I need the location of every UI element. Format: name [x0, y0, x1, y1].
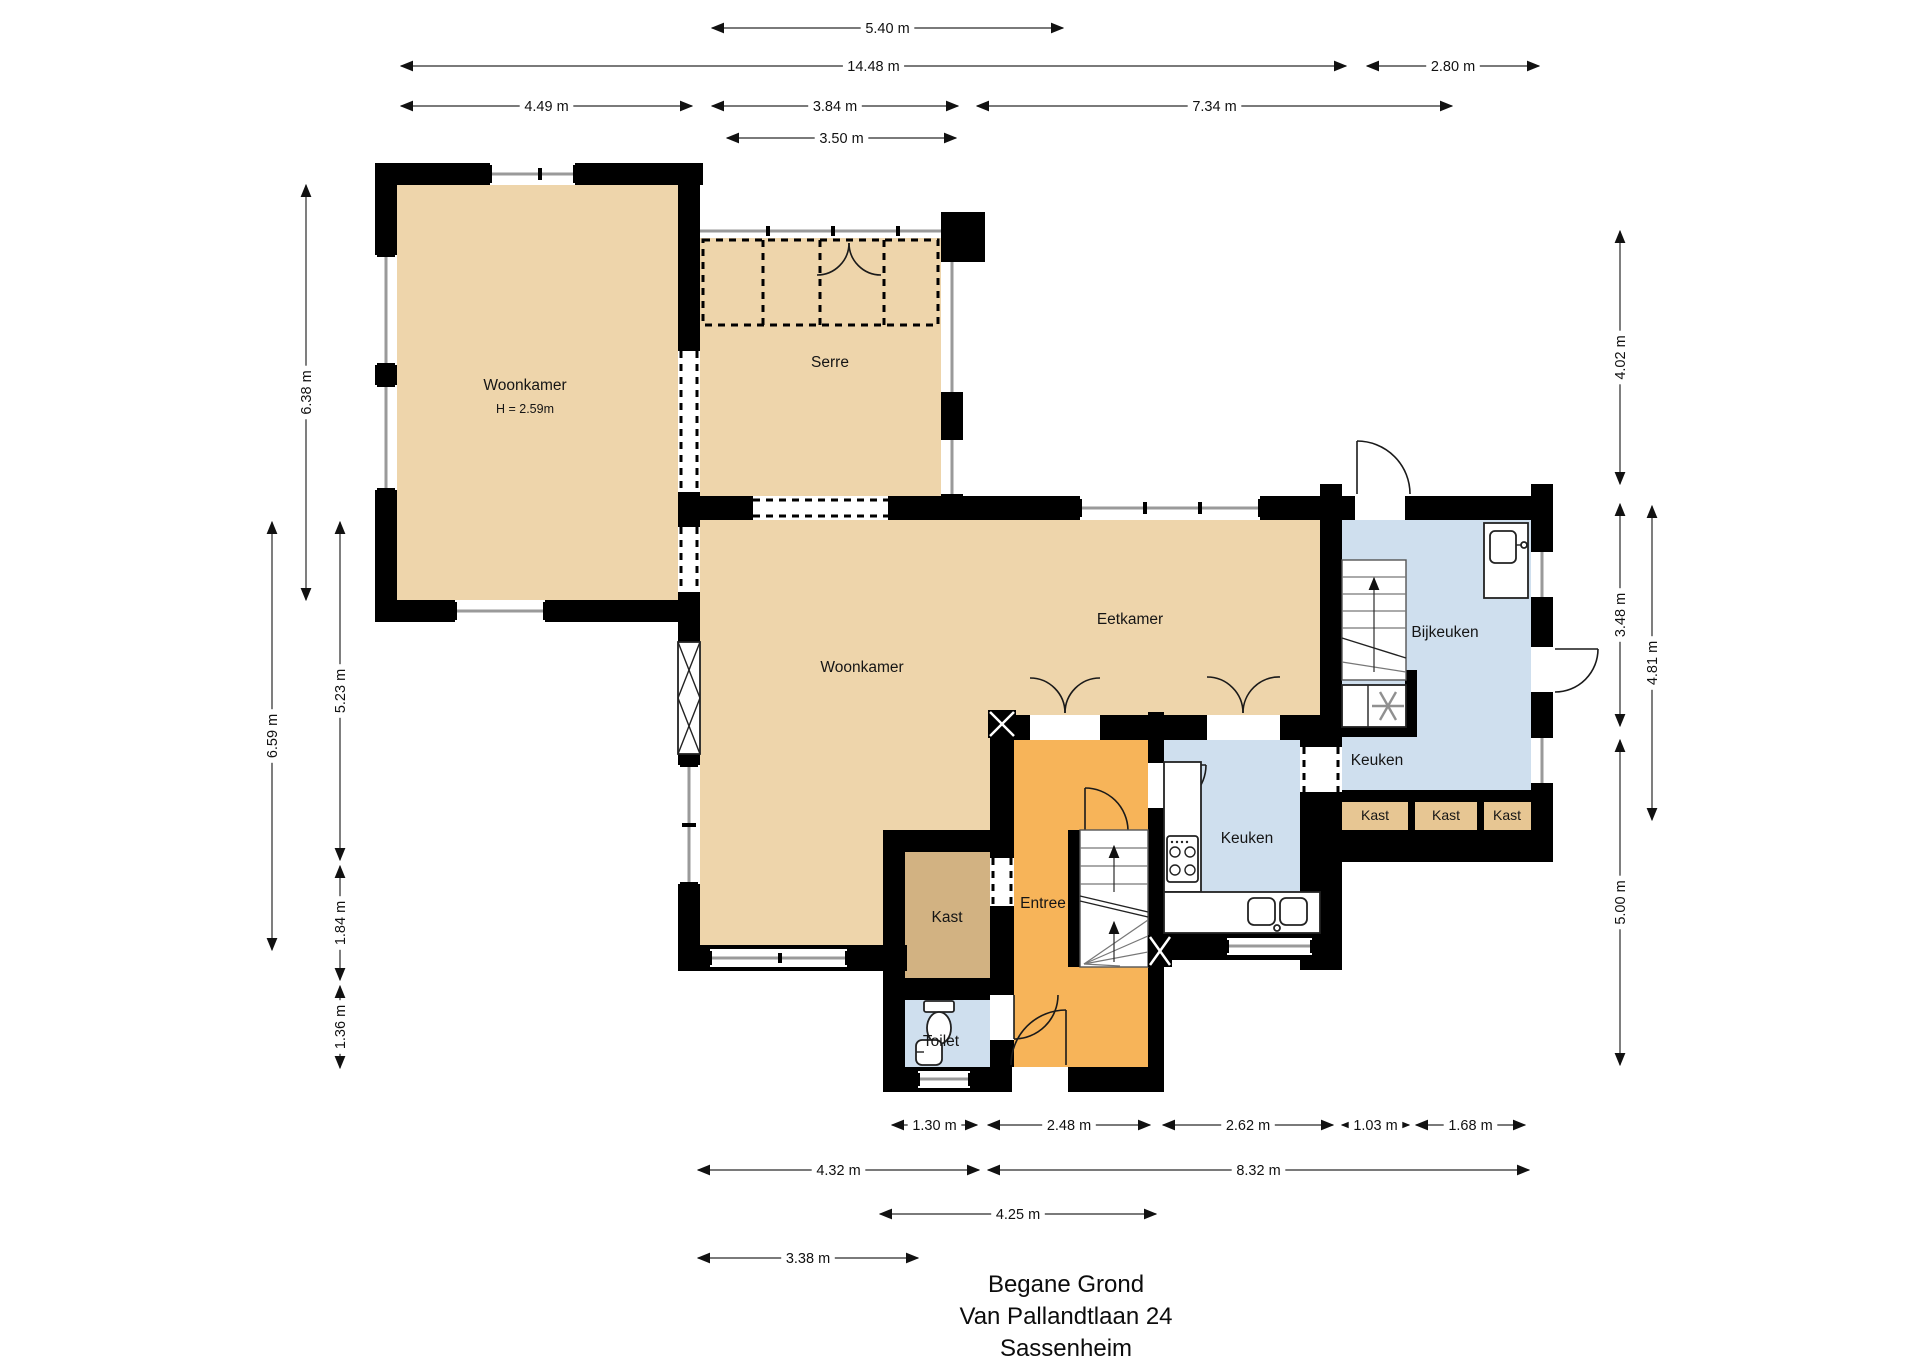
room-label-serre: Serre: [811, 354, 849, 371]
dimension: 2.80 m: [1367, 57, 1539, 75]
window: [490, 163, 575, 185]
dimension-label: 3.84 m: [813, 99, 857, 115]
stove: [1167, 836, 1198, 882]
window: [1531, 552, 1553, 597]
window: [1080, 496, 1260, 520]
window: [710, 949, 847, 967]
dimension-label: 1.68 m: [1448, 1118, 1492, 1134]
floor-plan-canvas: 5.40 m14.48 m2.80 m4.49 m3.84 m7.34 m3.5…: [0, 0, 1920, 1358]
kast-cell-label: Kast: [1432, 807, 1460, 823]
dimension: 1.36 m: [331, 986, 349, 1068]
dimension: 4.25 m: [880, 1205, 1156, 1223]
title-line-2: Van Pallandtlaan 24: [959, 1303, 1172, 1330]
dimension-label: 5.23 m: [333, 669, 349, 713]
window: [1227, 938, 1312, 955]
dimension: 1.84 m: [331, 866, 349, 980]
room-label-woonkamer-1: Woonkamer: [483, 377, 566, 394]
dimension-label: 4.81 m: [1645, 641, 1661, 685]
dimension: 4.81 m: [1643, 506, 1661, 820]
dimension: 1.68 m: [1416, 1116, 1525, 1134]
title-line-3: Sassenheim: [1000, 1335, 1132, 1358]
dimension: 3.48 m: [1611, 504, 1629, 726]
dimension: 8.32 m: [988, 1161, 1529, 1179]
dimension: 5.00 m: [1611, 740, 1629, 1065]
dimension-label: 3.48 m: [1613, 593, 1629, 637]
room-label-kast-entree: Kast: [931, 909, 963, 926]
title-line-1: Begane Grond: [988, 1271, 1144, 1298]
column: [988, 710, 1016, 738]
passage-dashed: [1300, 747, 1342, 792]
room-label-toilet: Toilet: [923, 1033, 960, 1050]
dimension: 4.32 m: [698, 1161, 979, 1179]
dimension: 4.02 m: [1611, 231, 1629, 484]
dimension: 2.62 m: [1163, 1116, 1333, 1134]
dimension-label: 2.62 m: [1226, 1118, 1270, 1134]
room-label-eetkamer: Eetkamer: [1097, 611, 1163, 628]
dimension: 3.38 m: [698, 1249, 918, 1267]
dimension-label: 1.03 m: [1353, 1118, 1397, 1134]
room-label-keuken: Keuken: [1221, 830, 1274, 847]
window: [375, 255, 397, 365]
dimension: 3.50 m: [727, 129, 956, 147]
dimension: 2.48 m: [988, 1116, 1150, 1134]
dimension: 4.49 m: [401, 97, 692, 115]
dimension: 6.38 m: [297, 185, 315, 600]
stairs-entree: [1080, 830, 1148, 967]
dimension-label: 7.34 m: [1192, 99, 1236, 115]
dimension-label: 3.38 m: [786, 1251, 830, 1267]
dimension: 1.30 m: [892, 1116, 977, 1134]
passage-dashed: [678, 527, 700, 592]
dimension: 5.23 m: [331, 522, 349, 860]
window: [375, 385, 397, 490]
room-label-entree: Entree: [1020, 895, 1066, 912]
dimension: 3.84 m: [712, 97, 958, 115]
passage-dashed: [990, 858, 1014, 906]
stairs-bijkeuken: [1342, 560, 1406, 680]
dimension: 6.59 m: [263, 522, 281, 950]
room-label-bijkeuken: Bijkeuken: [1411, 624, 1478, 641]
room-label-keuken-klein: Keuken: [1351, 752, 1404, 769]
window: [918, 1071, 970, 1088]
dimension-label: 4.49 m: [524, 99, 568, 115]
window: [455, 600, 545, 622]
passage-dashed: [678, 351, 700, 492]
dimension-label: 4.02 m: [1613, 335, 1629, 379]
dimension-label: 14.48 m: [847, 59, 899, 75]
window: [941, 440, 963, 494]
dimension-label: 6.38 m: [299, 370, 315, 414]
dimension-label: 6.59 m: [265, 714, 281, 758]
window: [1531, 738, 1553, 783]
window: [700, 224, 941, 238]
window: [678, 765, 700, 884]
passage-dashed: [753, 496, 888, 520]
dimension: 5.40 m: [712, 19, 1063, 37]
kast-cell-label: Kast: [1493, 807, 1521, 823]
room-sublabel-woonkamer-1: H = 2.59m: [496, 402, 554, 416]
plan-title: Begane Grond Van Pallandtlaan 24 Sassenh…: [959, 1271, 1172, 1358]
dimension-label: 5.40 m: [865, 21, 909, 37]
dimension: 1.03 m: [1342, 1116, 1409, 1134]
room-label-woonkamer-2: Woonkamer: [820, 659, 903, 676]
radiator: [678, 642, 700, 754]
dimension-label: 3.50 m: [819, 131, 863, 147]
dimension-label: 5.00 m: [1613, 880, 1629, 924]
sink-bijkeuken: [1484, 523, 1528, 598]
dimension-label: 4.25 m: [996, 1207, 1040, 1223]
dimension-label: 1.36 m: [333, 1005, 349, 1049]
fan-room: [1342, 685, 1406, 727]
window: [941, 262, 963, 392]
kast-cell-label: Kast: [1361, 807, 1389, 823]
dimension-label: 2.80 m: [1431, 59, 1475, 75]
column: [1148, 935, 1172, 967]
dimension-label: 2.48 m: [1047, 1118, 1091, 1134]
dimension-label: 1.84 m: [333, 901, 349, 945]
dimension: 14.48 m: [401, 57, 1346, 75]
dimension-label: 4.32 m: [816, 1163, 860, 1179]
dimension: 7.34 m: [977, 97, 1452, 115]
dimension-label: 8.32 m: [1236, 1163, 1280, 1179]
dimension-label: 1.30 m: [912, 1118, 956, 1134]
